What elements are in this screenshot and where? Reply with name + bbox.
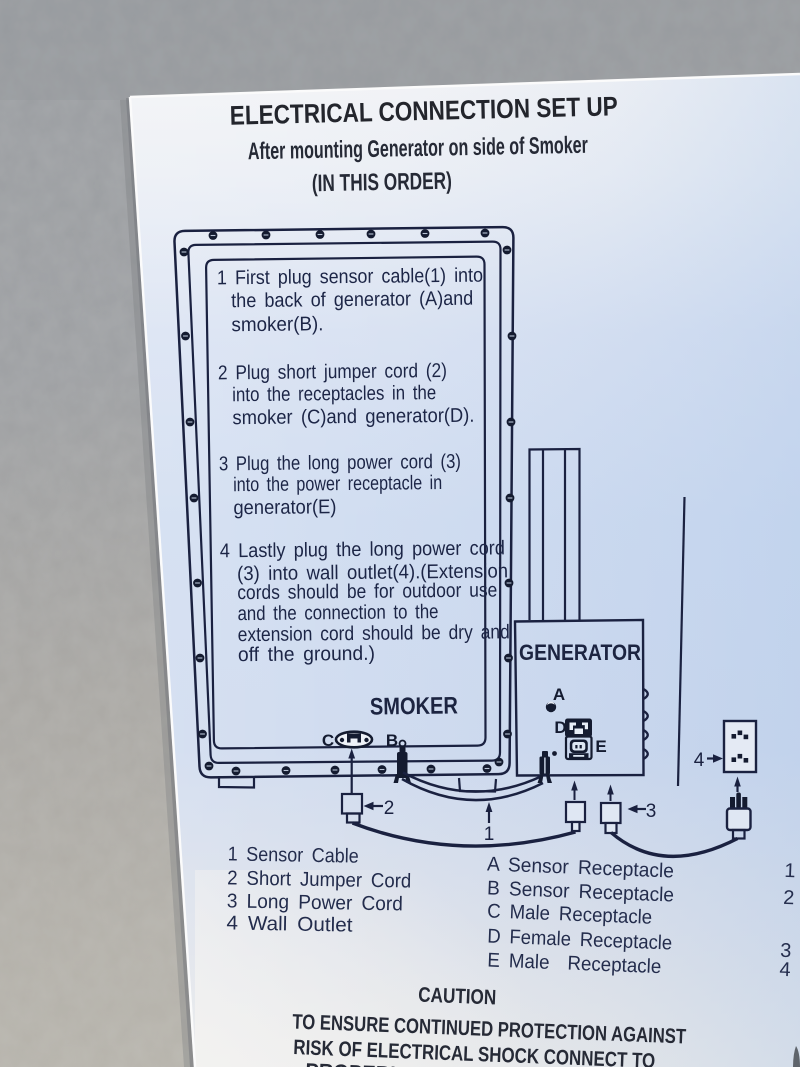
svg-text:2 Short Jumper Cord: 2 Short Jumper Cord: [227, 867, 411, 892]
svg-text:1: 1: [784, 860, 796, 882]
svg-text:into the receptacles in the: into the receptacles in the: [232, 382, 436, 406]
svg-text:(IN THIS ORDER): (IN THIS ORDER): [312, 168, 452, 198]
svg-text:D: D: [554, 718, 566, 737]
svg-text:2: 2: [783, 887, 795, 909]
svg-text:4: 4: [694, 750, 705, 771]
svg-text:1 First plug sensor cable(1) i: 1 First plug sensor cable(1) into: [217, 265, 483, 290]
svg-text:4: 4: [779, 959, 791, 981]
svg-text:1: 1: [484, 824, 495, 845]
svg-text:C: C: [322, 731, 334, 750]
svg-text:GENERATOR: GENERATOR: [519, 640, 641, 665]
svg-text:generator(E): generator(E): [233, 496, 336, 519]
svg-text:into the power receptacle in: into the power receptacle in: [233, 472, 442, 496]
svg-text:B: B: [386, 731, 398, 750]
svg-text:1 Sensor Cable: 1 Sensor Cable: [228, 843, 359, 867]
svg-text:off the ground.): off the ground.): [238, 643, 375, 666]
svg-text:3 Long Power Cord: 3 Long Power Cord: [227, 890, 403, 915]
svg-text:the back of generator (A)and: the back of generator (A)and: [231, 288, 473, 313]
svg-text:2 Plug short jumper cord (2): 2 Plug short jumper cord (2): [218, 360, 447, 384]
svg-text:SMOKER: SMOKER: [370, 692, 458, 720]
svg-text:cords should be for outdoor us: cords should be for outdoor use: [237, 579, 497, 604]
svg-text:A: A: [553, 685, 565, 704]
svg-text:3: 3: [646, 801, 657, 822]
svg-text:smoker(B).: smoker(B).: [231, 313, 323, 336]
svg-text:2: 2: [384, 798, 395, 819]
svg-text:4 Wall Outlet: 4 Wall Outlet: [226, 912, 353, 936]
svg-text:E: E: [595, 737, 606, 756]
svg-text:4 Lastly plug the long power c: 4 Lastly plug the long power cord: [220, 537, 505, 562]
svg-text:CAUTION: CAUTION: [418, 984, 497, 1010]
svg-text:smoker (C)and generator(D).: smoker (C)and generator(D).: [232, 405, 474, 430]
